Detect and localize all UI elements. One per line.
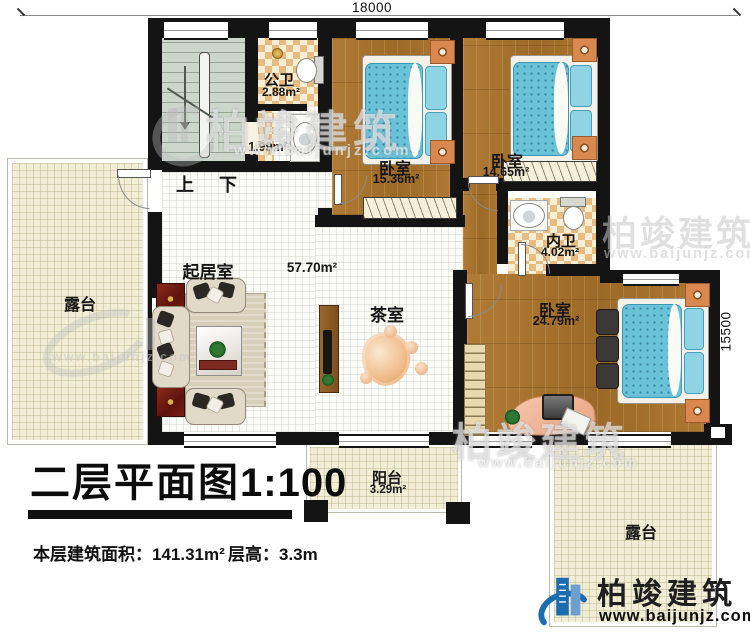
watermark-swoosh-bar-2 bbox=[181, 114, 188, 142]
ensuite-sink bbox=[513, 203, 545, 228]
bed3-pillow-2 bbox=[684, 352, 704, 394]
label-bedroom2-area: 14.65m² bbox=[483, 165, 530, 179]
balcony-column-right bbox=[446, 502, 470, 524]
tv-cabinet-plant bbox=[322, 374, 334, 386]
plan-title: 二层平面图1:100 bbox=[30, 450, 347, 508]
window-top-4 bbox=[486, 20, 564, 40]
tv-icon bbox=[323, 330, 332, 374]
tea-rock-ball-4 bbox=[360, 372, 372, 384]
watermark-terrace-site: www.baijunjz.com bbox=[52, 350, 192, 364]
living-cabinet-bottom bbox=[156, 387, 185, 417]
plan-title-scale: 1:100 bbox=[240, 461, 347, 505]
bed3-bench-1 bbox=[596, 309, 619, 335]
tea-rock-ball-3 bbox=[415, 362, 428, 375]
window-balcony-door bbox=[339, 434, 429, 448]
corner-column-se-notch bbox=[711, 427, 725, 438]
bed2-pillow-1 bbox=[570, 65, 592, 107]
bed3-bench-3 bbox=[596, 363, 619, 389]
wall-lamp-icon bbox=[272, 48, 283, 59]
tea-rock-ball-2 bbox=[405, 341, 418, 354]
floor-area-info: 本层建筑面积：141.31m² bbox=[33, 540, 225, 565]
bed2-sheet-fold bbox=[554, 62, 568, 154]
coffee-table-panel bbox=[199, 360, 237, 370]
window-top-1 bbox=[164, 20, 228, 40]
brand-site: www.baijunjz.com bbox=[599, 607, 750, 626]
building-swoosh-icon bbox=[533, 571, 591, 629]
bed2-nightstand-bottom bbox=[572, 136, 597, 160]
label-ensuite-bath-area: 4.02m² bbox=[541, 245, 579, 259]
toilet-bowl-public bbox=[296, 58, 317, 83]
wall-bottom-2 bbox=[276, 432, 339, 445]
label-stairs-up: 上 bbox=[176, 171, 194, 197]
toilet-bowl-ensuite bbox=[563, 206, 584, 230]
window-top-2 bbox=[269, 20, 317, 40]
wall-ensuite-left bbox=[497, 188, 508, 264]
floor-height-label: 层高： bbox=[228, 545, 279, 564]
watermark-swoosh-bar-1 bbox=[168, 108, 177, 142]
label-living: 起居室 bbox=[183, 258, 234, 283]
doorgap-bedroom1 bbox=[318, 172, 332, 208]
coffee-table-plant bbox=[209, 341, 226, 358]
bed1-wardrobe bbox=[363, 197, 457, 219]
floor-plan-canvas: 公卫 2.88m² 1.99m² 卧室 15.36m² 卧室 14.65m² 内… bbox=[0, 0, 750, 643]
window-bottom-1 bbox=[184, 434, 276, 448]
label-living-area: 57.70m² bbox=[287, 260, 337, 275]
floor-area-label: 本层建筑面积： bbox=[33, 545, 152, 564]
floor-area-value: 141.31m² bbox=[152, 545, 225, 564]
dimension-height: 15500 bbox=[719, 302, 734, 362]
bed1-pillow-1 bbox=[425, 66, 447, 110]
watermark-center-site: www.baijunjz.com bbox=[234, 142, 411, 159]
brand-logo: 柏竣建筑 www.baijunjz.com bbox=[533, 569, 745, 633]
dimension-width: 18000 bbox=[352, 0, 392, 15]
wall-bedroom2-bottom-left bbox=[450, 178, 470, 191]
label-bedroom1-area: 15.36m² bbox=[373, 172, 420, 186]
label-tea: 茶室 bbox=[370, 301, 404, 326]
bed3-nightstand-top bbox=[685, 283, 710, 307]
bed1-nightstand-bottom bbox=[430, 140, 455, 164]
floor-height-info: 层高：3.3m bbox=[228, 540, 318, 565]
title-underline bbox=[28, 510, 292, 519]
watermark-bottom-site: www.baijunjz.com bbox=[478, 454, 639, 470]
bed3-pillow-1 bbox=[684, 308, 704, 350]
bed3-bench-2 bbox=[596, 336, 619, 362]
watermark-terrace-bar-1 bbox=[146, 318, 155, 350]
window-bedroom3-top bbox=[623, 272, 679, 286]
watermark-topright-site: www.baijunjz.com bbox=[604, 246, 750, 262]
floor-height-value: 3.3m bbox=[279, 545, 318, 564]
bed2-nightstand-top bbox=[572, 38, 597, 62]
label-terrace-left: 露台 bbox=[64, 291, 96, 315]
tea-rock-ball-1 bbox=[384, 325, 397, 338]
wall-bottom-1 bbox=[148, 432, 184, 445]
bed3-nightstand-bottom bbox=[685, 399, 710, 423]
bed1-nightstand-top bbox=[430, 40, 455, 64]
brand-logo-icon bbox=[533, 571, 591, 629]
label-bedroom3-area: 24.79m² bbox=[533, 314, 580, 328]
label-terrace-right: 露台 bbox=[625, 519, 657, 543]
plan-title-text: 二层平面图 bbox=[30, 461, 240, 505]
label-stairs-down: 下 bbox=[219, 171, 237, 197]
window-top-3 bbox=[356, 20, 428, 40]
dimension-line-top bbox=[20, 15, 738, 16]
label-balcony-area: 3.29m² bbox=[370, 484, 406, 496]
bed3-sheet-fold bbox=[668, 304, 681, 396]
